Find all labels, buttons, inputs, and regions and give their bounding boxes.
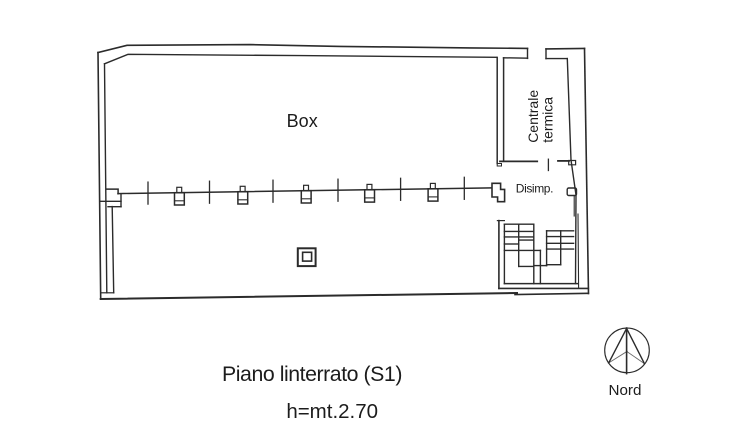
svg-text:Disimp.: Disimp. xyxy=(516,182,553,196)
svg-text:termica: termica xyxy=(540,97,556,143)
svg-text:Piano linterrato (S1): Piano linterrato (S1) xyxy=(222,362,402,386)
svg-text:Box: Box xyxy=(287,111,318,131)
svg-text:Nord: Nord xyxy=(609,382,642,399)
svg-text:h=mt.2.70: h=mt.2.70 xyxy=(286,400,378,423)
